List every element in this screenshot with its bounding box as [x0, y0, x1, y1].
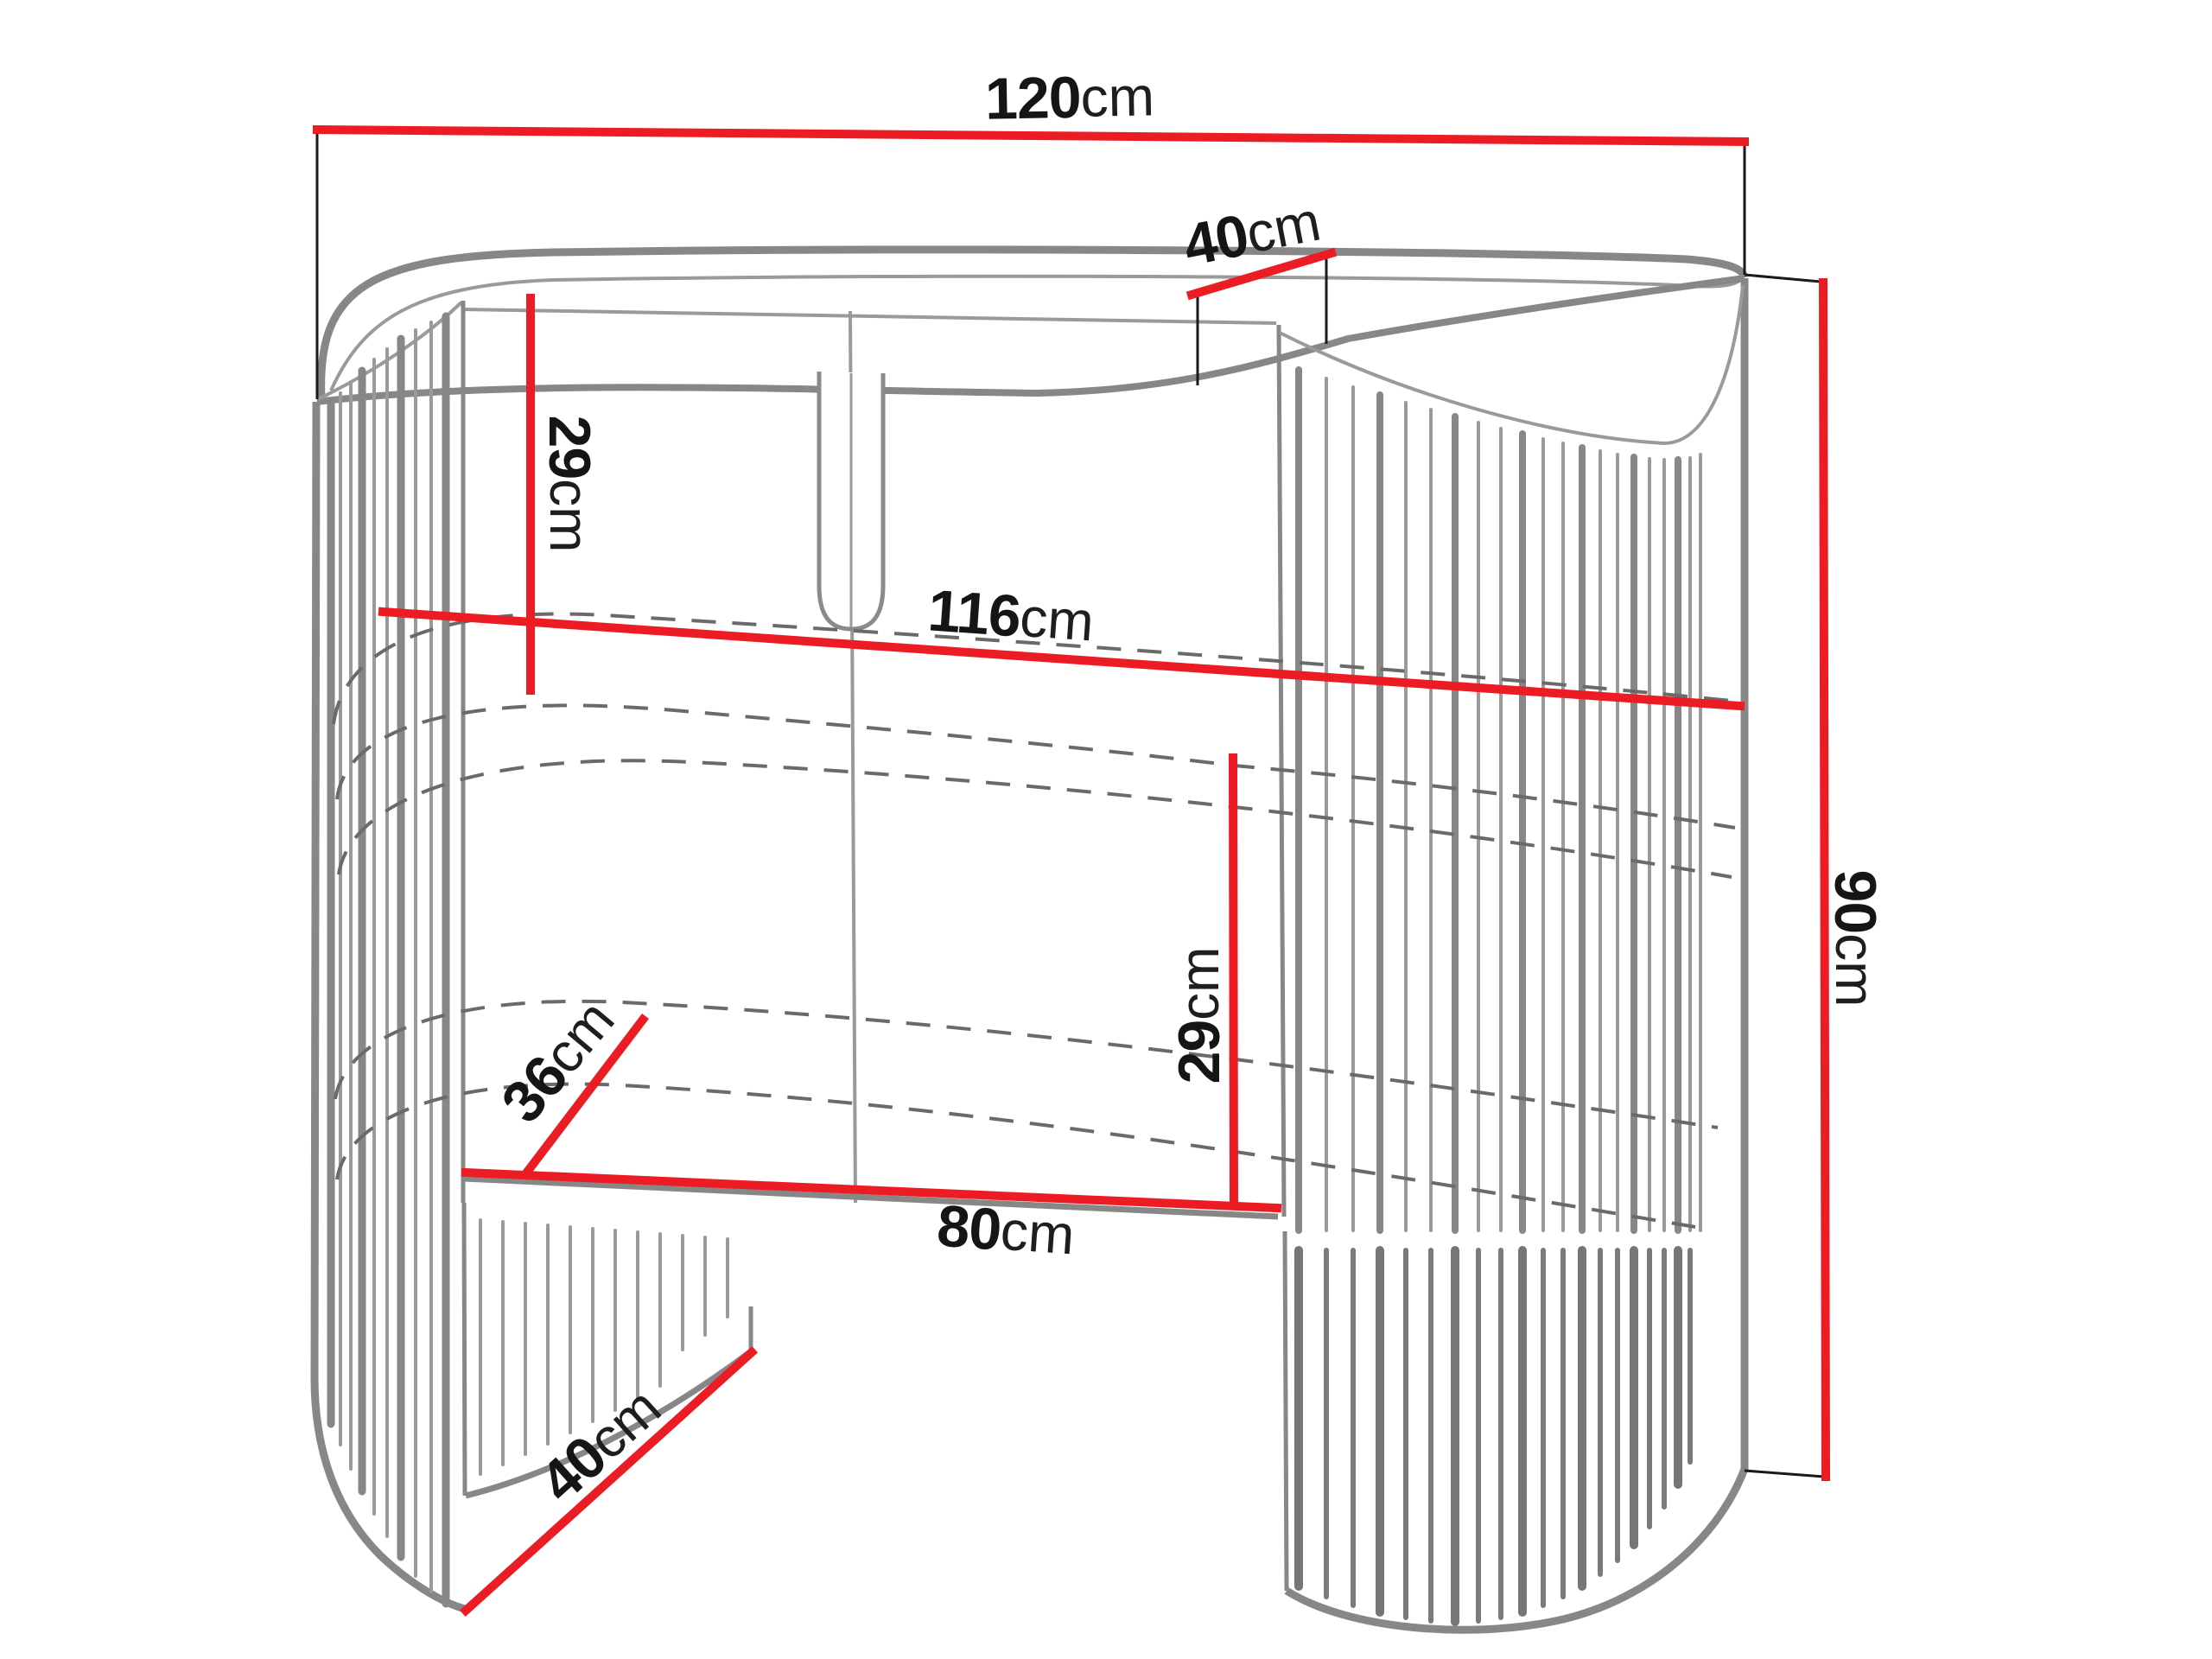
dimension-label-29cm-middle: 29cm	[1166, 947, 1232, 1084]
dimension-unit-90: cm	[1824, 933, 1886, 1007]
shelf-guide-dashes	[334, 614, 1739, 1227]
right-pedestal-left-edge	[1279, 325, 1287, 1591]
dimension-line-80cm	[466, 1173, 1277, 1208]
dimension-value-116: 116	[926, 577, 1023, 649]
right-pedestal-upper-slats-thick	[1299, 370, 1678, 1230]
dimension-unit-29-left: cm	[538, 479, 601, 552]
left-pedestal-inner-edge	[463, 301, 465, 1496]
desk-front-edge	[464, 1179, 1278, 1217]
diagram-stage: 120cm 40cm 90cm 29cm 116cm 29cm 36cm 80c…	[0, 0, 2212, 1659]
connector-top-right	[1745, 275, 1821, 282]
dimension-value-80: 80	[935, 1193, 1003, 1263]
left-pedestal	[315, 301, 466, 1609]
dimension-label-120cm: 120cm	[984, 63, 1154, 131]
dimension-label-80cm: 80cm	[935, 1193, 1077, 1268]
lid-underside-line	[463, 309, 1276, 323]
dimension-unit-29-middle: cm	[1168, 947, 1230, 1020]
furniture-dimension-diagram: 120cm 40cm 90cm 29cm 116cm 29cm 36cm 80c…	[0, 0, 2212, 1659]
dimension-label-116cm: 116cm	[926, 577, 1096, 654]
lid-top-rim	[331, 276, 1742, 391]
dimension-label-29cm-left: 29cm	[537, 416, 602, 553]
dimension-value-29-left: 29	[537, 416, 602, 480]
dimension-value-29-middle: 29	[1166, 1020, 1232, 1084]
dimension-line-120cm	[317, 130, 1745, 142]
dimension-line-29cm-middle	[1233, 758, 1234, 1202]
dimension-value-90: 90	[1822, 870, 1888, 934]
connector-bottom-right	[1745, 1471, 1824, 1477]
left-pedestal-thin-slats	[340, 322, 431, 1592]
dimension-unit-116: cm	[1018, 586, 1096, 653]
dimension-value-40-top: 40	[1179, 202, 1254, 279]
dimension-unit-120: cm	[1080, 65, 1155, 128]
dimension-label-90cm: 90cm	[1822, 870, 1888, 1007]
dimension-unit-80: cm	[999, 1199, 1077, 1267]
dimension-value-120: 120	[984, 65, 1081, 132]
right-pedestal	[1279, 278, 1745, 1630]
